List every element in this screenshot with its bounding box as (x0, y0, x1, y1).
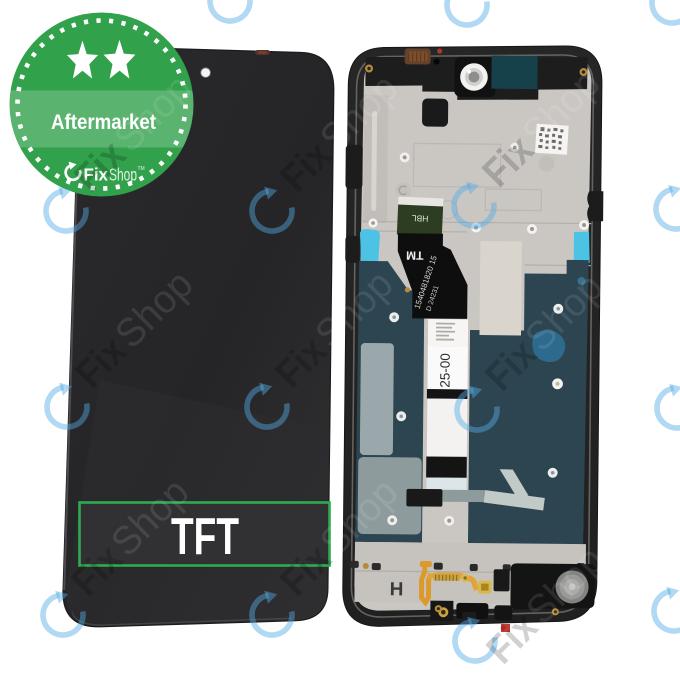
svg-text:HBL: HBL (411, 213, 428, 224)
svg-text:TM: TM (406, 248, 423, 262)
svg-text:25-00: 25-00 (437, 353, 452, 388)
svg-text:H: H (390, 579, 404, 600)
svg-text:TM: TM (138, 166, 145, 172)
